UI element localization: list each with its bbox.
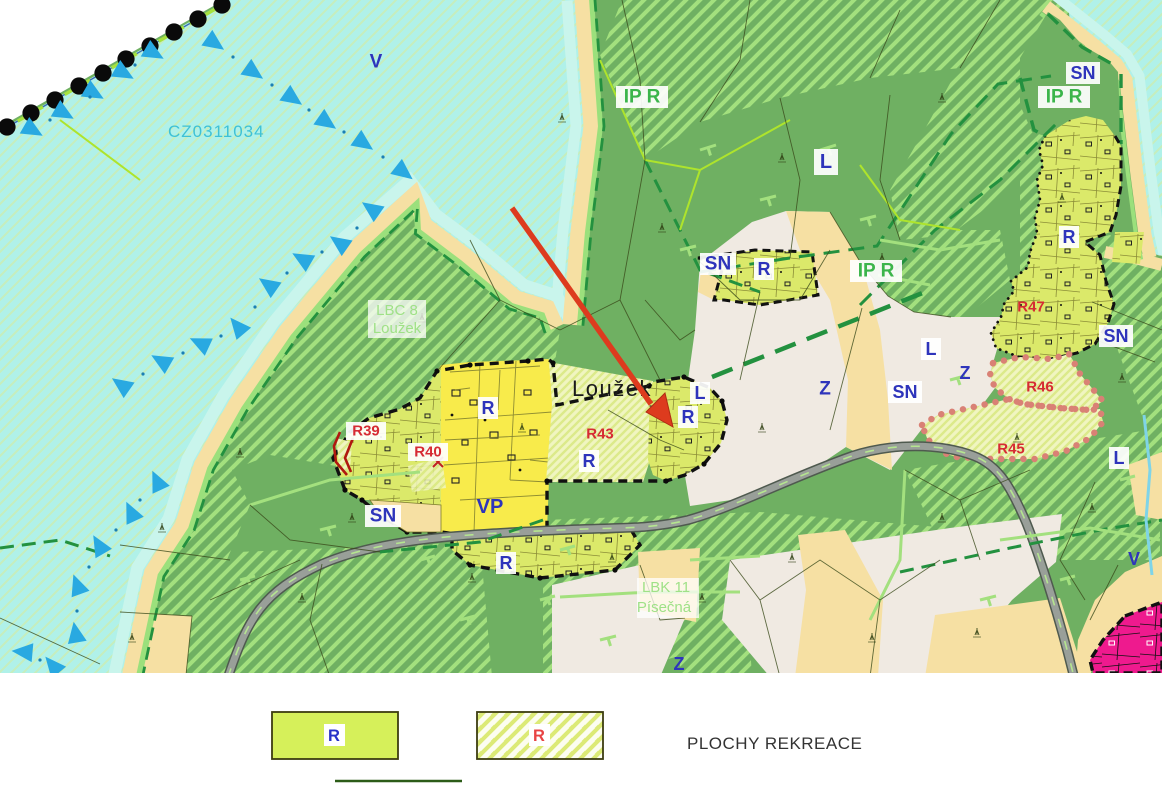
svg-text:R: R xyxy=(758,259,771,279)
svg-text:Z: Z xyxy=(819,379,831,400)
svg-text:R39: R39 xyxy=(352,423,380,440)
svg-text:R: R xyxy=(533,727,545,745)
svg-text:CZ0311034: CZ0311034 xyxy=(168,122,265,141)
svg-text:IP R: IP R xyxy=(624,87,661,108)
svg-text:L: L xyxy=(926,339,937,359)
svg-text:L: L xyxy=(695,383,706,403)
svg-text:R40: R40 xyxy=(414,444,442,461)
svg-text:R: R xyxy=(328,727,340,745)
svg-text:SN: SN xyxy=(892,382,917,402)
svg-text:SN: SN xyxy=(370,506,396,527)
svg-text:L: L xyxy=(1114,448,1125,468)
svg-text:PLOCHY REKREACE: PLOCHY REKREACE xyxy=(687,734,862,753)
svg-text:V: V xyxy=(370,52,383,73)
svg-text:L: L xyxy=(820,151,832,173)
svg-text:Loužek: Loužek xyxy=(373,320,422,337)
svg-text:R: R xyxy=(482,398,495,418)
svg-text:V: V xyxy=(1128,549,1140,569)
svg-text:SN: SN xyxy=(705,254,731,275)
svg-text:Písečná: Písečná xyxy=(637,599,692,616)
svg-text:R: R xyxy=(682,407,695,427)
svg-text:R: R xyxy=(500,553,513,573)
svg-text:R: R xyxy=(1063,227,1076,247)
svg-text:IP R: IP R xyxy=(858,261,895,282)
svg-text:LBC 8: LBC 8 xyxy=(376,302,418,319)
svg-text:Z: Z xyxy=(674,654,685,674)
svg-text:SN: SN xyxy=(1103,326,1128,346)
svg-text:R46: R46 xyxy=(1026,379,1054,396)
svg-text:R47: R47 xyxy=(1017,299,1045,316)
svg-text:IP R: IP R xyxy=(1046,87,1083,108)
svg-text:R43: R43 xyxy=(586,426,614,443)
svg-text:R: R xyxy=(583,451,596,471)
svg-text:SN: SN xyxy=(1070,63,1095,83)
svg-text:Z: Z xyxy=(960,363,971,383)
svg-text:R45: R45 xyxy=(997,441,1025,458)
svg-text:LBK 11: LBK 11 xyxy=(642,579,690,596)
svg-text:VP: VP xyxy=(477,496,504,518)
